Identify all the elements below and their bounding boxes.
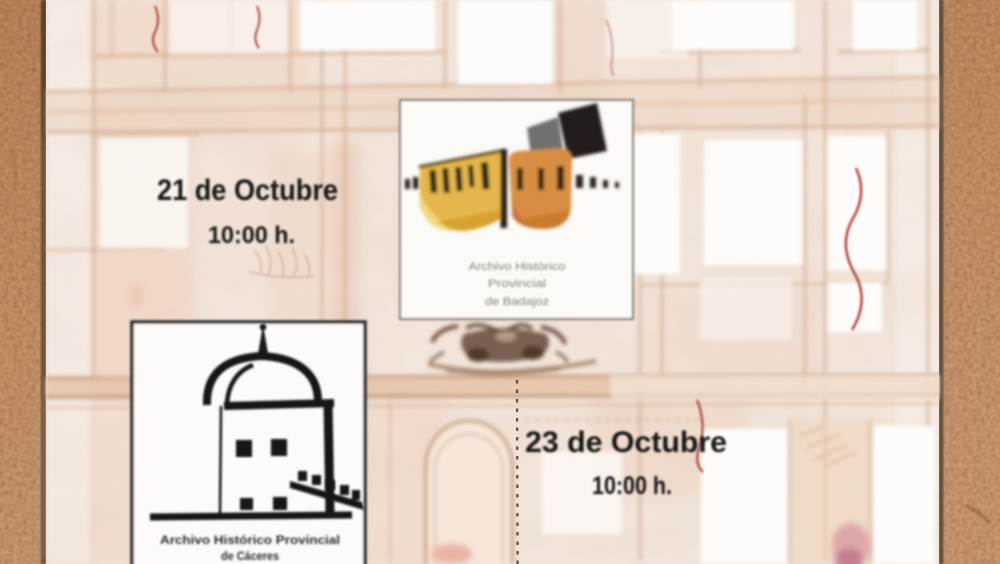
svg-text:Archivo Histórico: Archivo Histórico <box>469 261 566 273</box>
svg-text:10:00 h.: 10:00 h. <box>592 472 672 500</box>
svg-text:21 de Octubre: 21 de Octubre <box>157 174 338 207</box>
svg-text:de Badajoz: de Badajoz <box>485 296 549 308</box>
svg-text:Archivo Histórico Provincial: Archivo Histórico Provincial <box>160 533 340 547</box>
svg-text:de Cáceres: de Cáceres <box>221 549 279 563</box>
svg-text:Provincial: Provincial <box>488 278 546 290</box>
svg-text:10:00 h.: 10:00 h. <box>208 222 295 249</box>
svg-text:23 de Octubre: 23 de Octubre <box>525 426 727 459</box>
